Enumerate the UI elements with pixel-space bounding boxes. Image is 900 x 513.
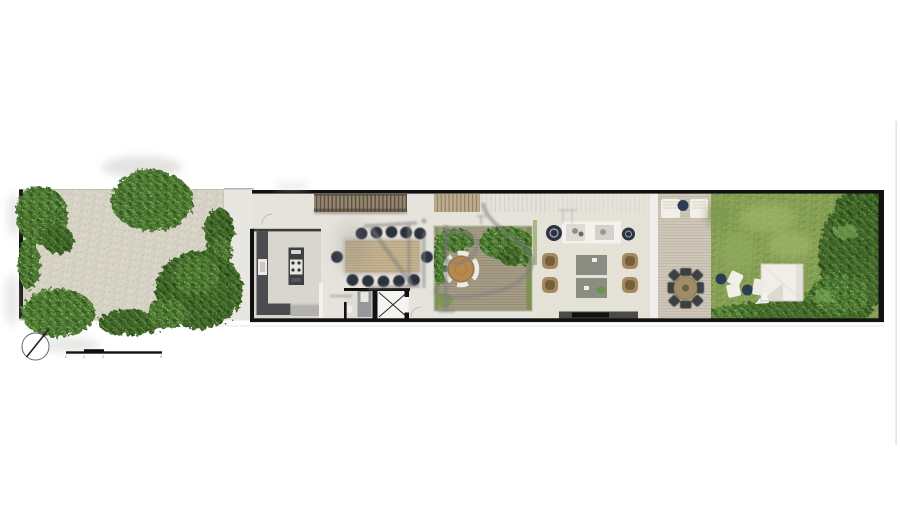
svg-text:1: 1 [83, 355, 85, 359]
svg-text:2: 2 [102, 355, 104, 359]
svg-text:0: 0 [65, 355, 67, 359]
svg-text:5: 5 [160, 355, 162, 359]
